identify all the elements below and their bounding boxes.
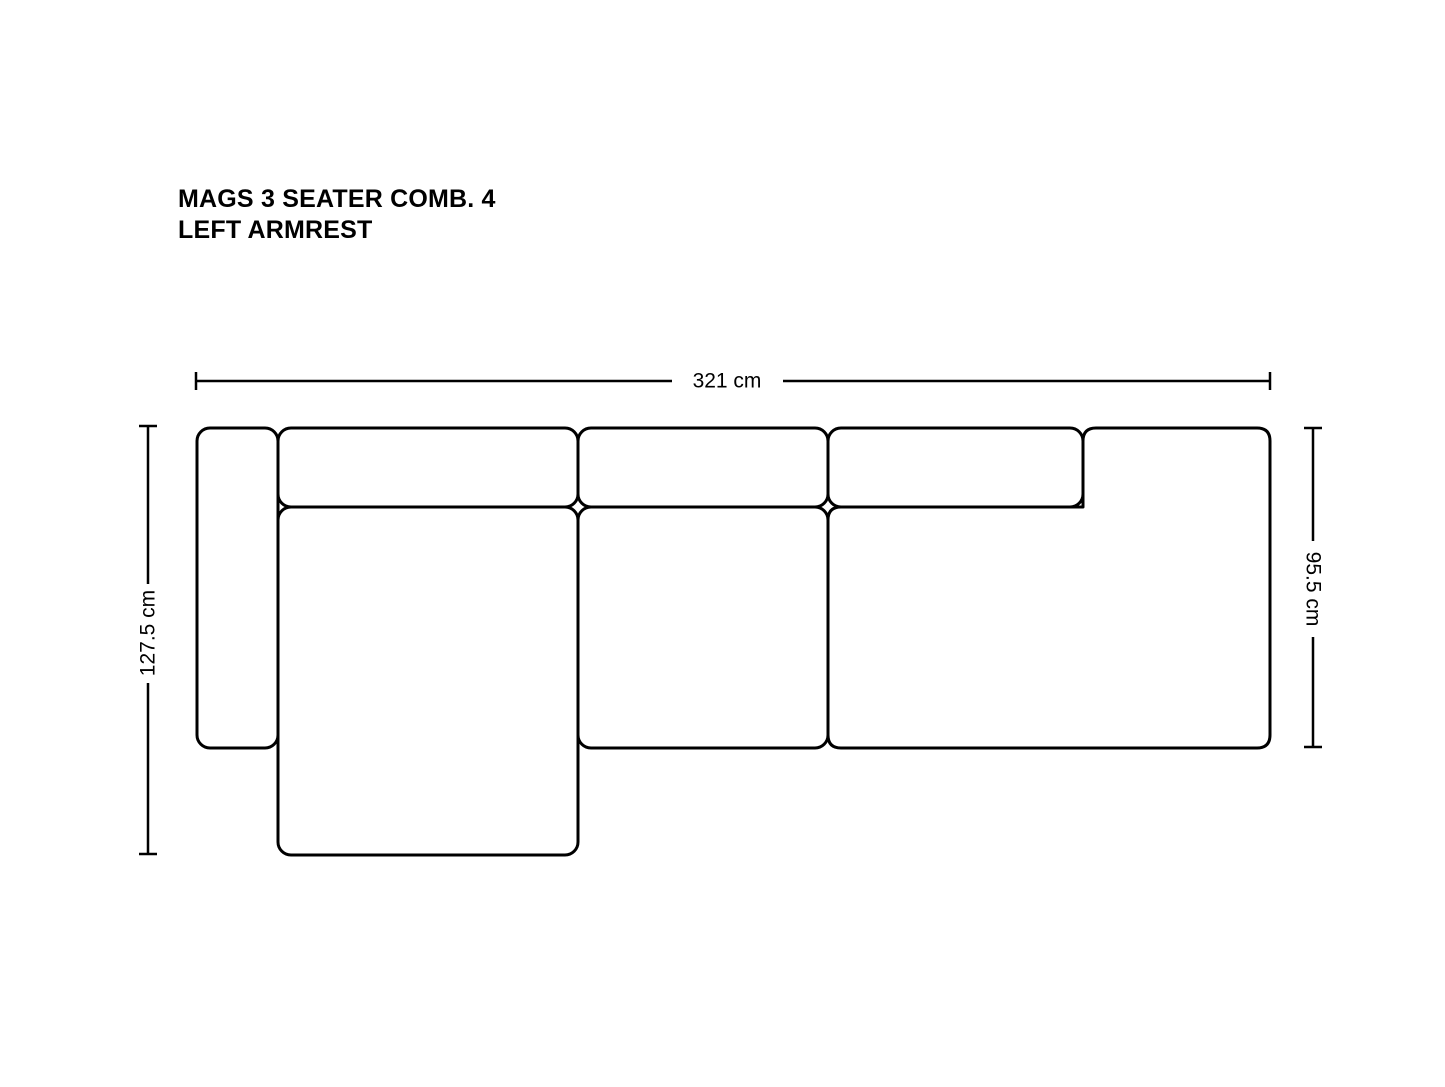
middle-seat-outline [578, 507, 828, 748]
sofa-dimension-diagram: 321 cm 127.5 cm 95.5 cm [0, 0, 1445, 1087]
sofa-outline-group [197, 428, 1270, 855]
backrest-cushion-middle-outline [578, 428, 828, 507]
width-dimension-label: 321 cm [693, 370, 762, 393]
page: MAGS 3 SEATER COMB. 4 LEFT ARMREST [0, 0, 1445, 1087]
left-depth-dimension-label: 127.5 cm [137, 590, 160, 676]
left-armrest-outline [197, 428, 278, 748]
backrest-cushion-left-outline [278, 428, 578, 507]
backrest-cushion-right-outline [828, 428, 1083, 507]
right-depth-dimension-label: 95.5 cm [1302, 552, 1325, 627]
chaise-longue-seat-outline [278, 507, 578, 855]
